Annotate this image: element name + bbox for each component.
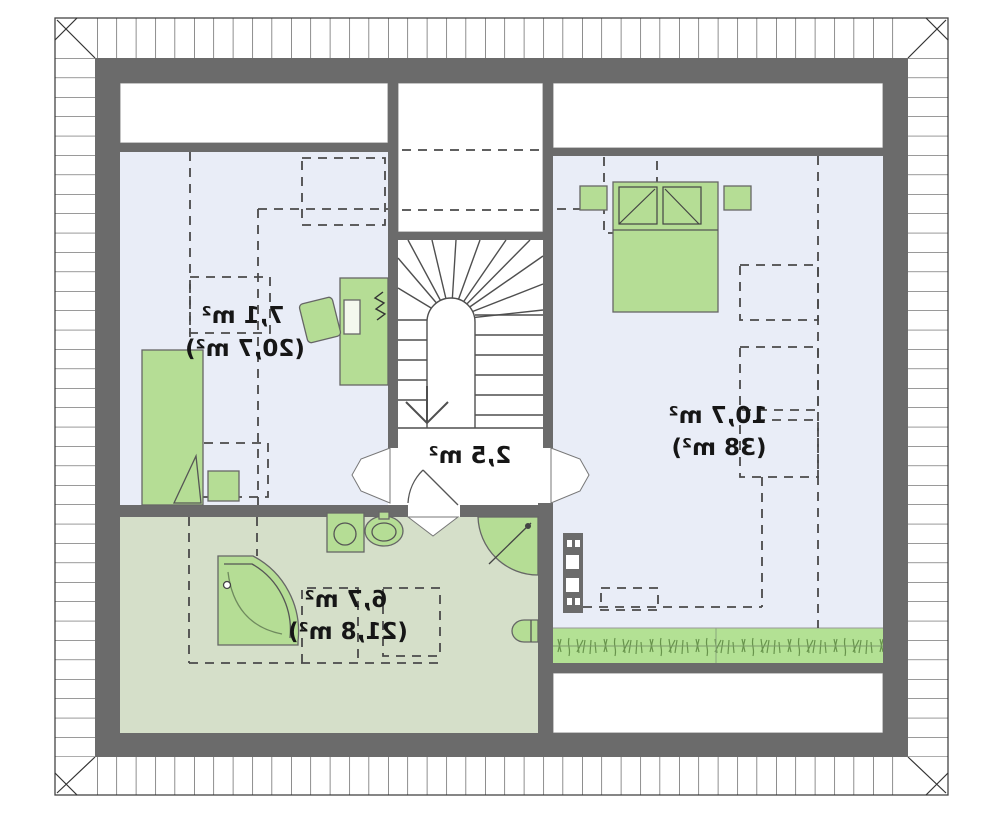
toilet (512, 620, 538, 642)
hall-wall-left (388, 83, 398, 448)
hall-wall-right (543, 83, 553, 448)
double-bed (613, 182, 718, 312)
bathroom-wall-north-left (120, 505, 408, 517)
eaves-ticks-top (95, 18, 908, 58)
hall-area-label: 2,5 m² (429, 443, 512, 469)
stairwell-edge-wall (398, 232, 543, 240)
chimney (563, 533, 583, 613)
room-left-area-label: 7,1 m² (202, 303, 285, 329)
knee-zone-top-left (120, 83, 388, 143)
washing-machine (327, 513, 364, 552)
sofa-bed (142, 350, 203, 505)
exterior-wall-right (883, 58, 908, 757)
exterior-wall-top (95, 58, 908, 83)
bedroom-area-total-label: (38 m²) (671, 435, 766, 461)
eaves-ticks-right (908, 58, 948, 757)
exterior-wall-left (95, 58, 120, 757)
knee-wall-bottom-right (553, 663, 883, 673)
bedroom-area-label: 10,7 m² (669, 403, 768, 429)
eaves-ticks-bottom (95, 757, 908, 795)
monitor (344, 300, 360, 334)
knee-wall-top-left (120, 143, 388, 152)
floor-plan: 7,1 m² (20,7 m²) 2,5 m² 10,7 m² (38 m²) … (0, 0, 1000, 822)
nightstand-bedroom-right (724, 186, 751, 210)
knee-wall-top-right (553, 148, 883, 156)
knee-zone-bottom-right (553, 673, 883, 733)
knee-zone-top-right (553, 83, 883, 148)
bathtub-faucet (224, 582, 231, 589)
nightstand-left-room (208, 471, 239, 501)
exterior-wall-bottom (95, 733, 908, 757)
nightstand-bedroom-left (580, 186, 607, 210)
door-opening-bathroom (408, 505, 460, 517)
bathroom-area-total-label: (21,8 m²) (288, 619, 408, 645)
stair-rail (427, 298, 475, 428)
bathroom-wall-east (538, 503, 553, 733)
room-left-area-total-label: (20,7 m²) (185, 336, 305, 362)
washbasin-tap (379, 512, 389, 519)
shower-drain (525, 523, 531, 529)
bathroom-area-label: 6,7 m² (305, 587, 388, 613)
storage-strip (553, 628, 883, 663)
eaves-ticks-left (55, 58, 95, 757)
